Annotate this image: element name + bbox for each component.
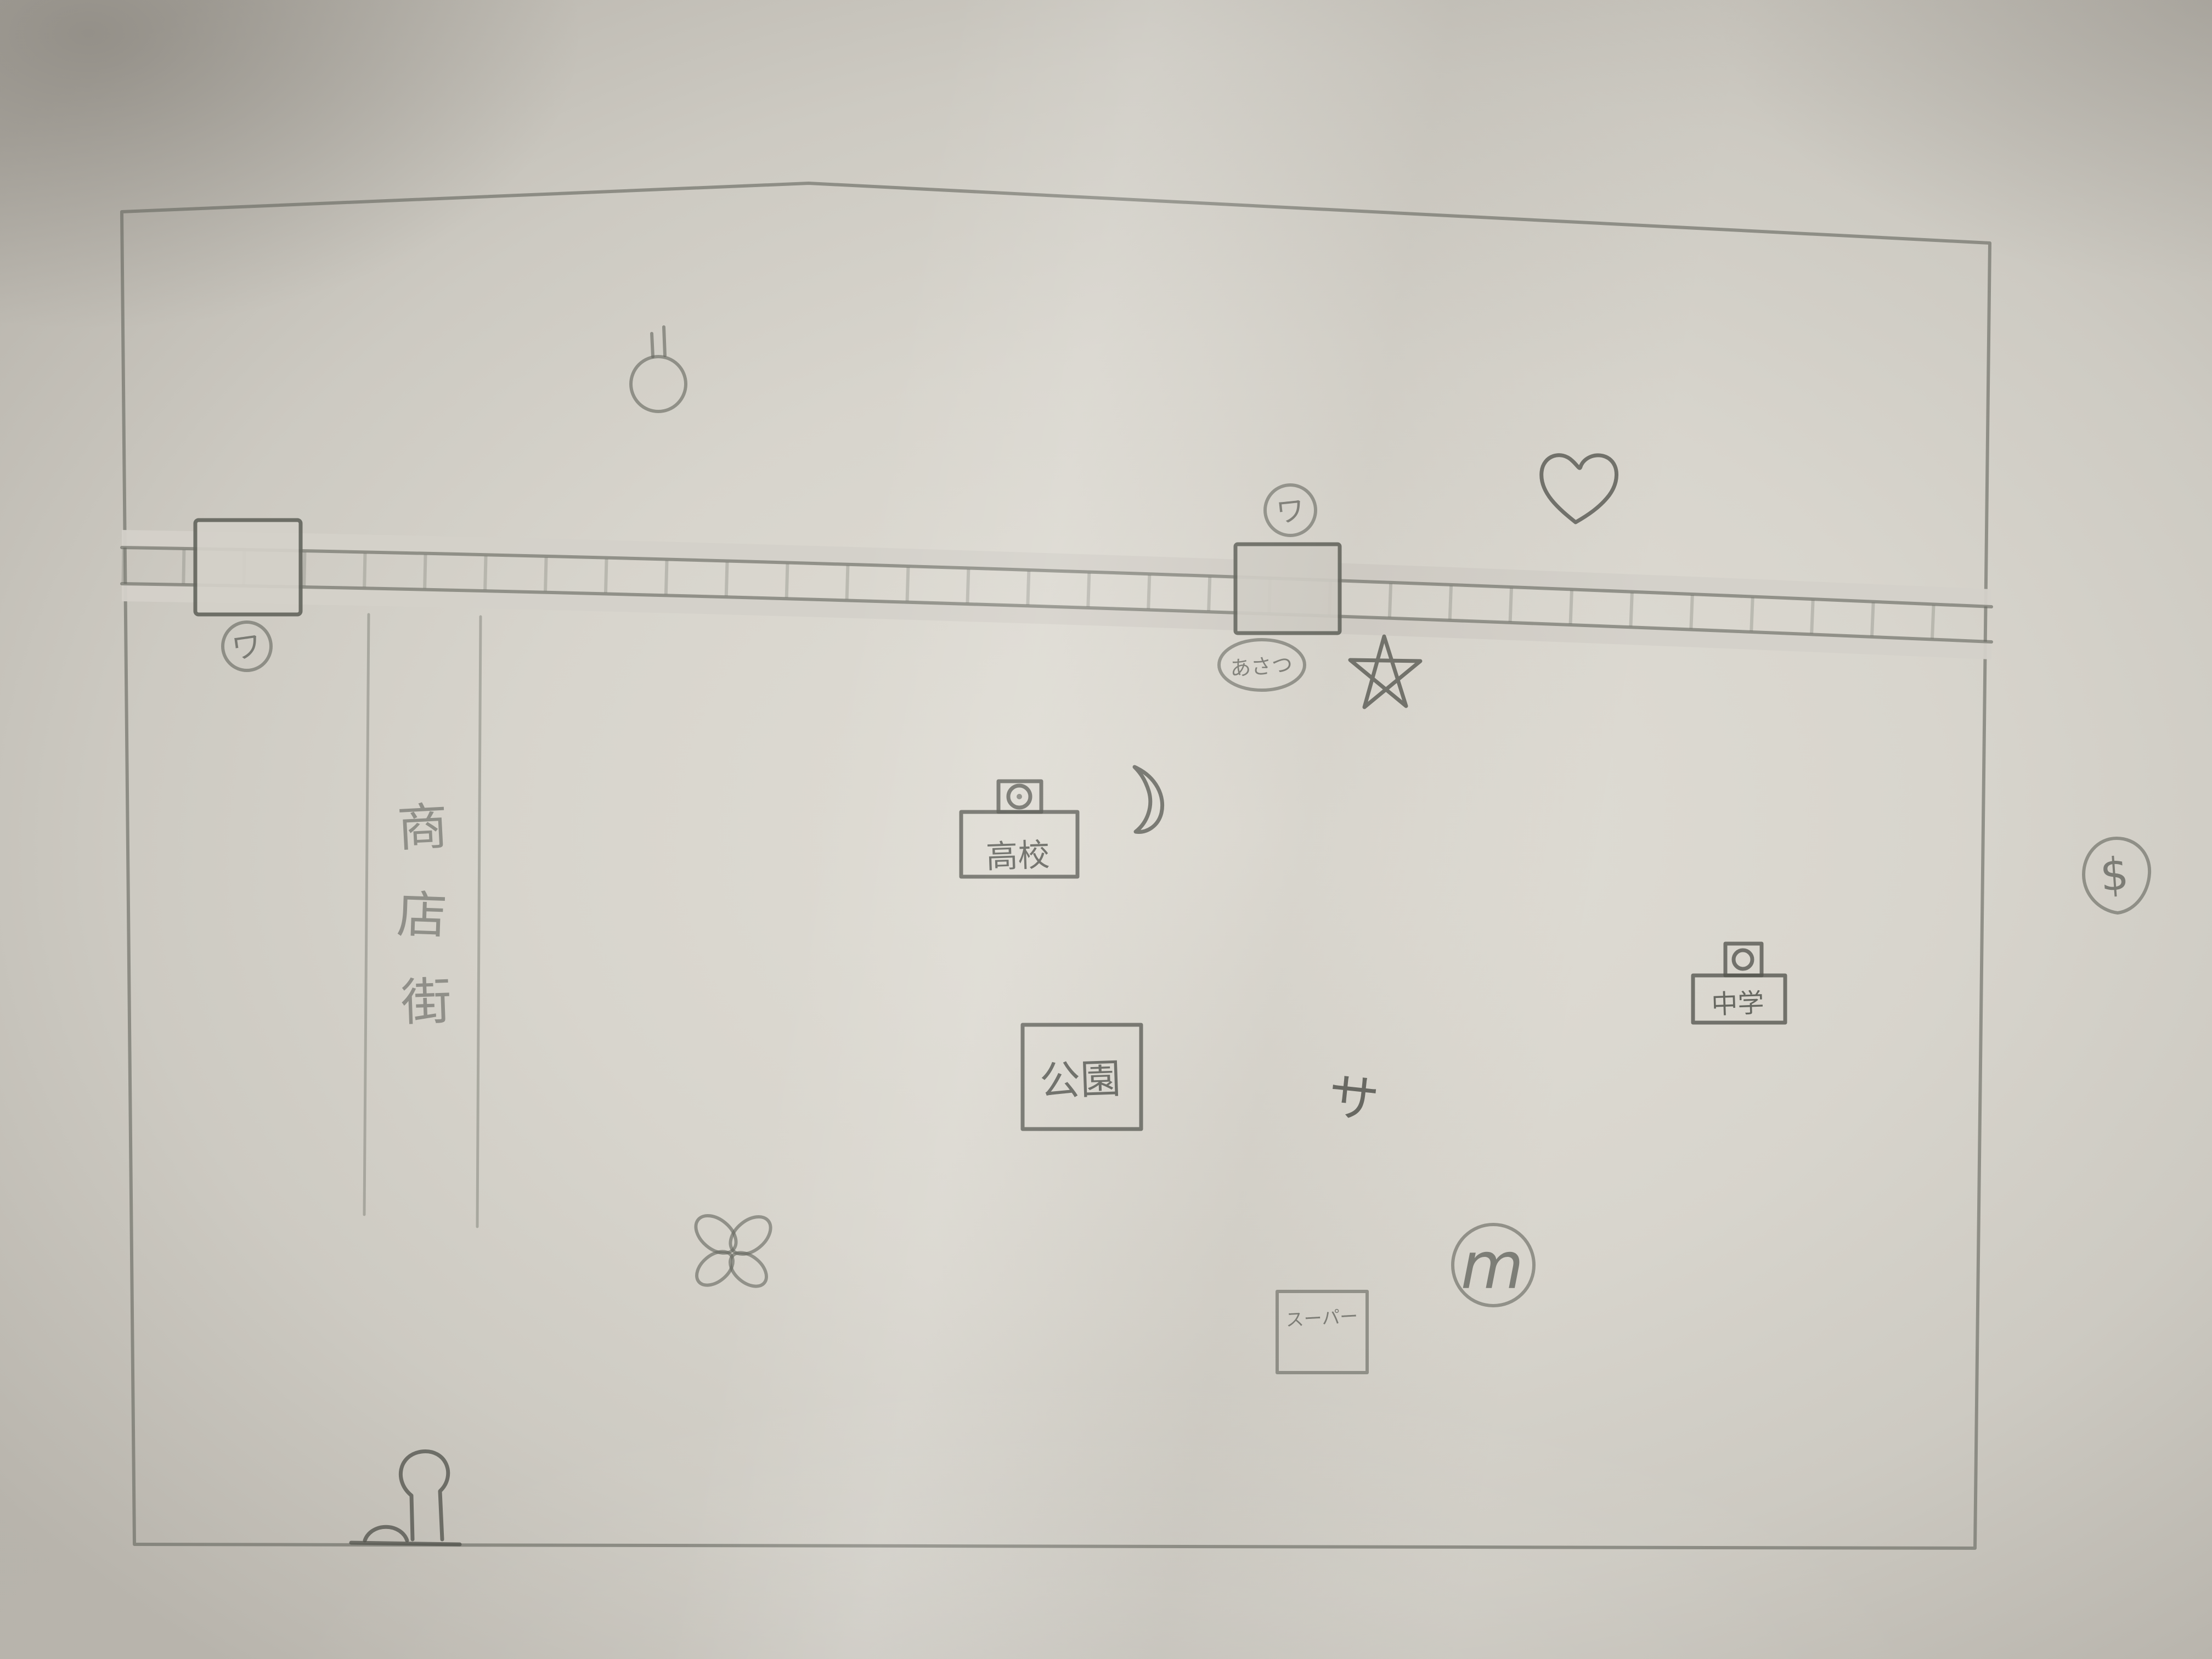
station-center-box: [1235, 544, 1340, 633]
slide-base-line: [351, 1543, 460, 1544]
dollar-label: $: [2098, 848, 2131, 901]
heart-icon: [1542, 455, 1617, 522]
station-center: ワ あさつ: [1219, 485, 1340, 690]
middle-school-building: 中学: [1693, 944, 1785, 1023]
middle-school-clock-icon: [1734, 950, 1752, 969]
shopping-street-left-line: [364, 614, 369, 1215]
mcdonalds-icon: m: [1453, 1224, 1534, 1306]
photo-of-hand-drawn-map: 商 店 街 ワ ワ あさつ: [0, 0, 2212, 1659]
station-left-box: [195, 520, 301, 614]
shopping-street-right-line: [477, 617, 481, 1227]
station-left-badge-label: ワ: [229, 628, 263, 667]
high-school-building: 高校: [961, 781, 1077, 877]
slide-tree: [400, 1452, 448, 1539]
map-border: [122, 183, 1990, 1548]
station-left: ワ: [195, 520, 301, 670]
middle-school-label: 中学: [1711, 988, 1764, 1020]
m-label: m: [1461, 1228, 1524, 1304]
supermarket-building: スーパー: [1277, 1291, 1367, 1373]
railway-track: [122, 530, 1991, 659]
balloon-stem-right: [664, 327, 665, 356]
flower-icon: [689, 1208, 777, 1293]
high-school-label: 高校: [985, 836, 1050, 876]
sa-mark: サ: [1325, 1067, 1382, 1131]
slide-arch: [365, 1527, 407, 1541]
park-area: 公園: [1023, 1025, 1141, 1129]
shopping-street-label-char3: 街: [400, 972, 453, 1032]
station-center-badge-label: ワ: [1274, 494, 1306, 530]
supermarket-label: スーパー: [1285, 1306, 1359, 1331]
dollar-icon: $: [2084, 838, 2149, 913]
station-center-name-label: あさつ: [1229, 652, 1294, 681]
shopping-street: 商 店 街: [364, 614, 481, 1227]
slide-icon: [351, 1452, 460, 1544]
park-label: 公園: [1039, 1055, 1122, 1105]
supermarket-box: [1277, 1291, 1367, 1373]
balloon-icon: [631, 327, 686, 411]
high-school-clock-center: [1017, 794, 1022, 799]
balloon-stem-left: [652, 334, 653, 357]
shopping-street-label-char2: 店: [396, 885, 448, 945]
balloon-circle: [631, 357, 686, 411]
shopping-street-label-char1: 商: [396, 797, 449, 859]
map-drawing: 商 店 街 ワ ワ あさつ: [0, 0, 2212, 1659]
crescent-moon-icon: [1135, 767, 1163, 832]
star-icon: [1350, 636, 1420, 707]
